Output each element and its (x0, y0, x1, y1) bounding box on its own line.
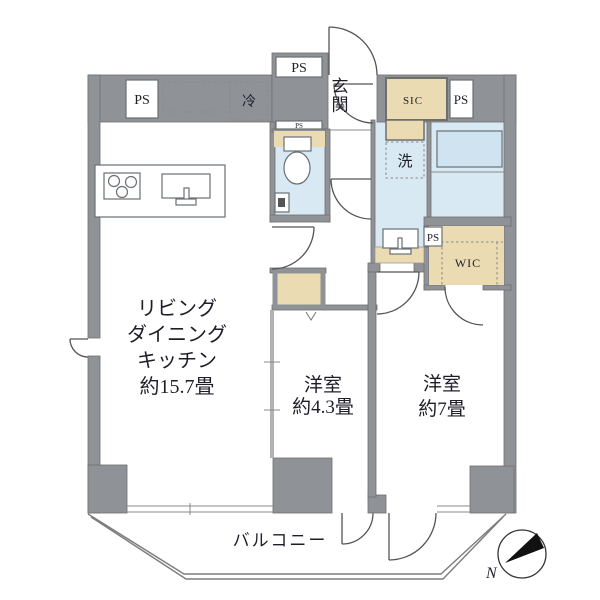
compass-north-label: N (485, 565, 498, 582)
wall-toilet-right (325, 129, 330, 222)
ldk-side-door-swing (70, 339, 88, 357)
balcony-door-large-swing (389, 513, 436, 560)
ps-label-sic: PS (454, 92, 468, 107)
wall-stub-washroom-left (368, 263, 380, 272)
washer-label: 洗 (397, 153, 412, 170)
compass: N (485, 530, 546, 582)
shoe-closet-sic-extension (386, 120, 424, 140)
wic-door-swing (445, 287, 483, 325)
wall-wic-left (424, 246, 429, 290)
hallway-door-swing (331, 179, 371, 219)
wall-toilet-bottom (270, 215, 330, 222)
bedroom-large-door-swing (377, 272, 419, 314)
wall-ldk-bedroom-partition (270, 310, 274, 458)
wall-pier-bottom-right (470, 466, 514, 513)
bedroom-large-label-line2: 約7畳 (418, 398, 466, 420)
toilet-tank (284, 137, 311, 151)
wall-bath-washroom-divider (427, 122, 431, 217)
wic-label: WIC (455, 256, 481, 270)
closet-door-mark (306, 312, 316, 320)
balcony-label: バルコニー (233, 531, 328, 550)
toilet-remote-button (278, 198, 285, 207)
toilet-bowl (284, 152, 310, 184)
entrance-label: 玄関 (332, 77, 349, 115)
wall-pier-bottom-center (273, 458, 332, 513)
wall-bedroom-divider (368, 268, 376, 497)
floor-plan-page: N PS PS PS PS PS 冷 SIC WIC 洗 玄関 リビング ダイニ… (0, 0, 600, 600)
stove-burner-3 (117, 187, 128, 198)
stove-burner-1 (109, 176, 120, 187)
bedroom-large-label-line1: 洋室 (423, 373, 461, 395)
wall-wic-bottom-right (483, 285, 511, 290)
wall-right (504, 75, 516, 513)
wall-wic-bottom-left (424, 285, 445, 290)
ps-label-wic: PS (427, 232, 439, 244)
stove-burner-2 (126, 177, 137, 188)
ldk-label-line2: ダイニング (127, 323, 227, 346)
ps-label-toilet: PS (295, 122, 303, 130)
bedroom-small-label-line2: 約4.3畳 (292, 396, 354, 418)
balcony-door-small-swing (342, 513, 373, 544)
ldk-window (127, 506, 273, 512)
ldk-label-line4: 約15.7畳 (140, 375, 215, 398)
wall-bath-bottom (424, 217, 511, 226)
ldk-label-line1: リビング (137, 297, 217, 320)
bedroom-small-label-line1: 洋室 (304, 374, 342, 396)
hall-closet (275, 271, 323, 307)
ps-label-kitchen: PS (134, 93, 150, 108)
basin-faucet-base (390, 249, 411, 254)
ldk-door-swing (272, 227, 314, 269)
sic-label: SIC (403, 95, 423, 107)
ps-label-entrance: PS (291, 61, 307, 76)
front-door-swing (329, 27, 377, 75)
ldk-label-line3: キッチン (137, 350, 217, 372)
bathtub (437, 131, 502, 167)
bedroom-large-window (437, 506, 470, 512)
wall-pier-divider-foot (368, 495, 386, 513)
floor-plan-drawing: N PS PS PS PS PS 冷 SIC WIC 洗 玄関 リビング ダイニ… (0, 0, 600, 600)
kitchen-faucet-base (176, 199, 196, 205)
refrigerator-label: 冷 (242, 94, 256, 110)
wall-pier-bottom-left (88, 465, 127, 513)
